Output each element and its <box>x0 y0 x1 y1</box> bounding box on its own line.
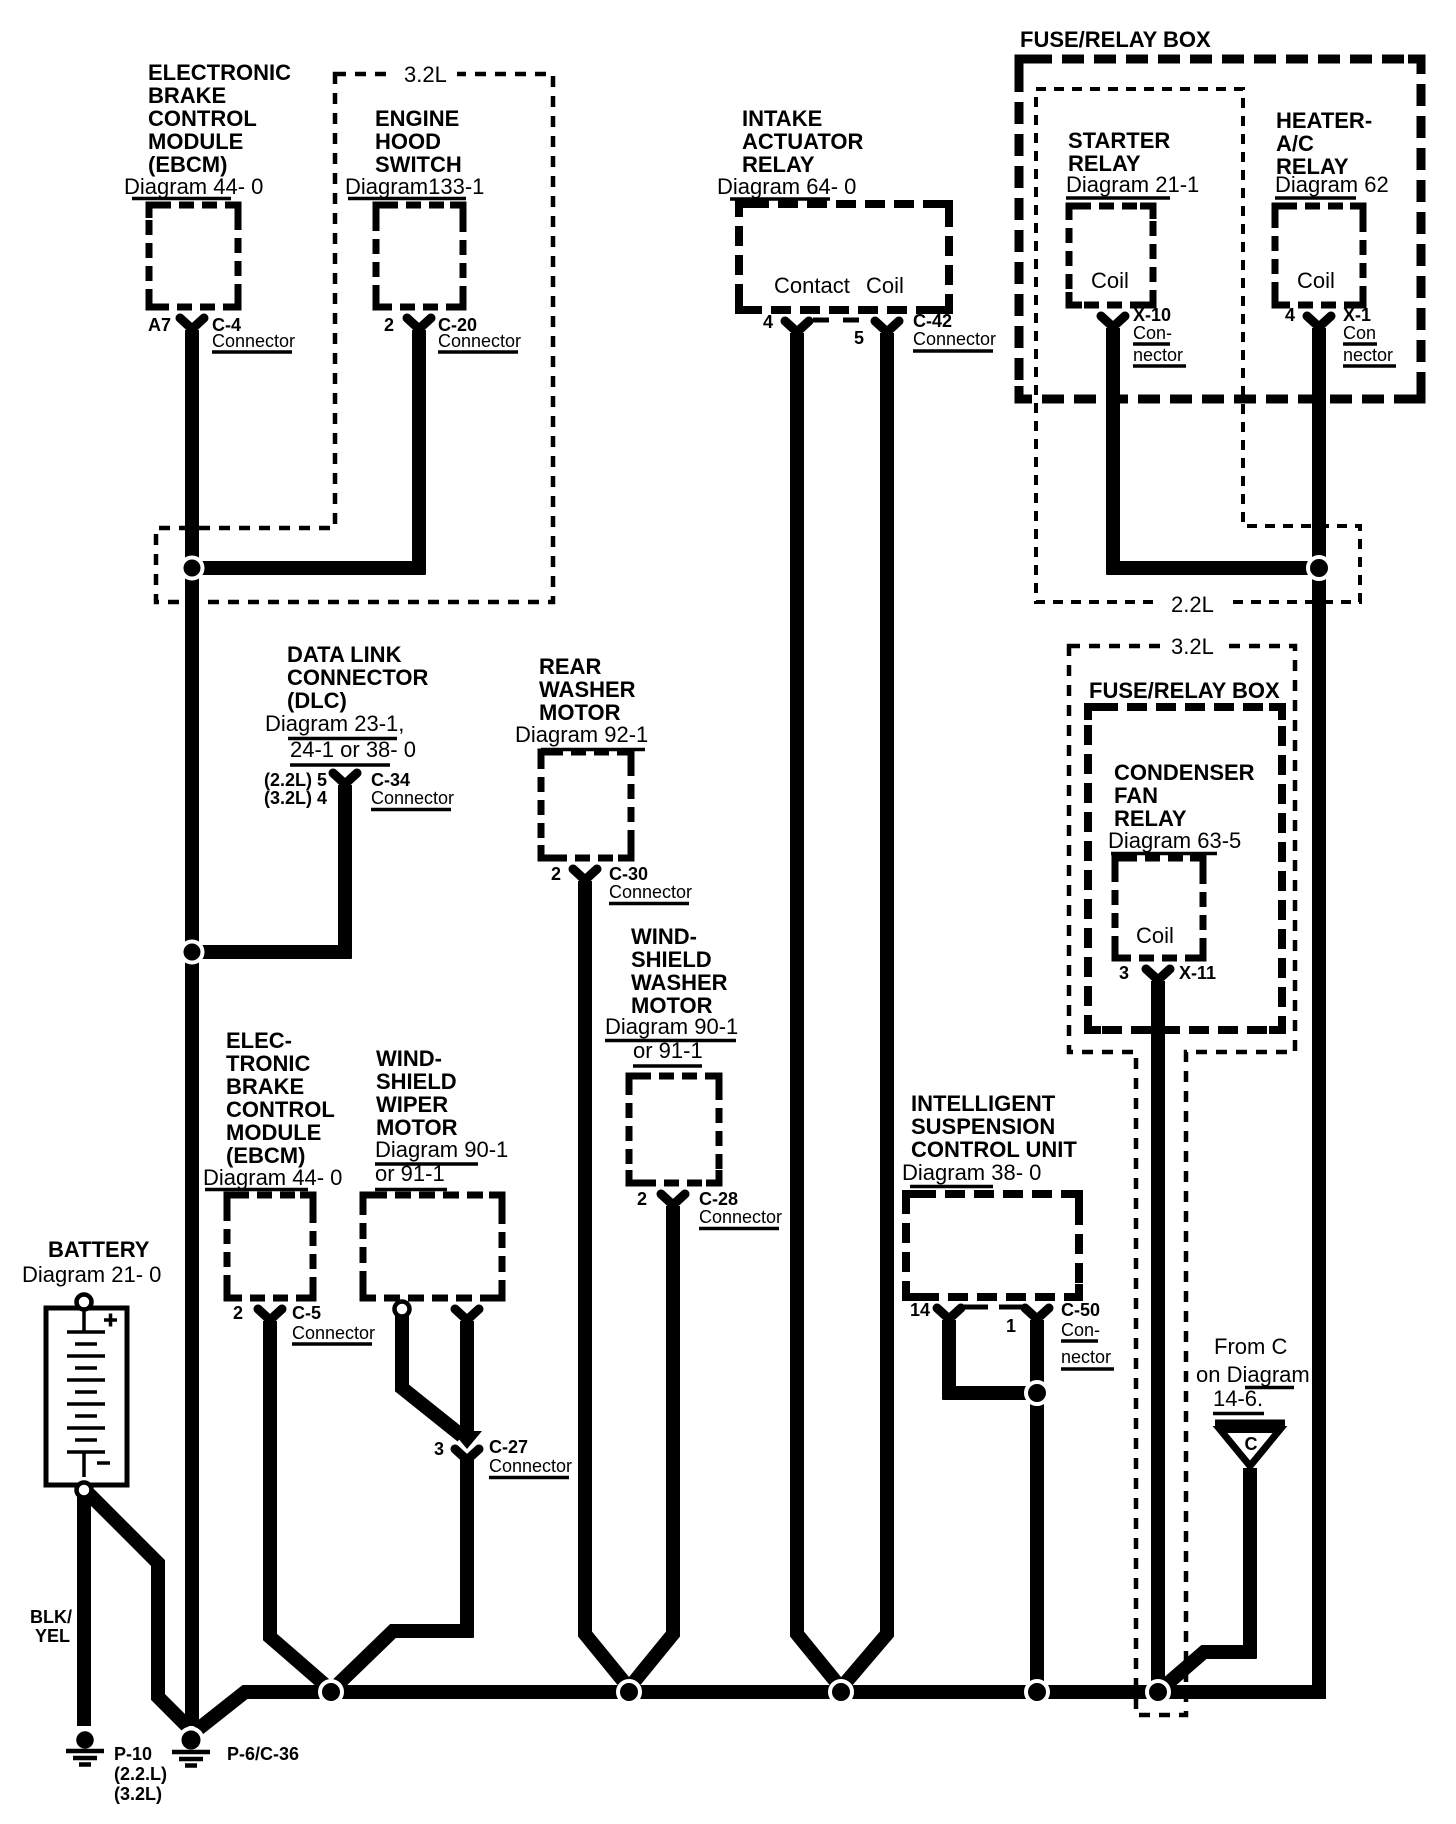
svg-text:Diagram 64- 0: Diagram 64- 0 <box>717 174 856 199</box>
svg-text:Coil: Coil <box>866 273 904 298</box>
svg-text:nector: nector <box>1061 1347 1111 1367</box>
svg-text:Diagram 90-1: Diagram 90-1 <box>605 1014 738 1039</box>
svg-text:MODULE: MODULE <box>226 1120 321 1145</box>
svg-text:Connector: Connector <box>438 331 521 351</box>
svg-text:WIND-: WIND- <box>376 1046 442 1071</box>
svg-text:P-6/C-36: P-6/C-36 <box>227 1744 299 1764</box>
svg-text:2: 2 <box>233 1303 243 1323</box>
svg-text:14: 14 <box>910 1300 930 1320</box>
svg-text:X-10: X-10 <box>1133 305 1171 325</box>
svg-text:nector: nector <box>1343 345 1393 365</box>
svg-text:(3.2L): (3.2L) <box>114 1784 162 1804</box>
svg-text:Coil: Coil <box>1091 268 1129 293</box>
svg-text:X-11: X-11 <box>1179 963 1216 983</box>
svg-text:Diagram133-1: Diagram133-1 <box>345 174 484 199</box>
svg-text:INTAKE: INTAKE <box>742 106 822 131</box>
svg-text:P-10: P-10 <box>114 1744 152 1764</box>
svg-text:FAN: FAN <box>1114 783 1158 808</box>
svg-text:(DLC): (DLC) <box>287 688 347 713</box>
svg-text:C-28: C-28 <box>699 1189 738 1209</box>
svg-text:Connector: Connector <box>699 1207 782 1227</box>
svg-text:nector: nector <box>1133 345 1183 365</box>
svg-text:(2.2.L): (2.2.L) <box>114 1764 167 1784</box>
svg-text:Diagram 44- 0: Diagram 44- 0 <box>124 174 263 199</box>
svg-text:(2.2L) 5: (2.2L) 5 <box>264 770 327 790</box>
svg-text:FUSE/RELAY BOX: FUSE/RELAY BOX <box>1020 27 1211 52</box>
svg-text:BLK/: BLK/ <box>30 1607 72 1627</box>
svg-text:BRAKE: BRAKE <box>226 1074 304 1099</box>
svg-text:C-42: C-42 <box>913 311 952 331</box>
svg-text:DATA LINK: DATA LINK <box>287 642 402 667</box>
svg-text:CONTROL: CONTROL <box>226 1097 335 1122</box>
svg-text:SHIELD: SHIELD <box>631 947 712 972</box>
svg-text:FUSE/RELAY BOX: FUSE/RELAY BOX <box>1089 678 1280 703</box>
svg-text:Con-: Con- <box>1061 1320 1100 1340</box>
svg-text:WASHER: WASHER <box>539 677 636 702</box>
svg-text:Diagram 21- 0: Diagram 21- 0 <box>22 1262 161 1287</box>
svg-text:2: 2 <box>637 1189 647 1209</box>
svg-text:Connector: Connector <box>292 1323 375 1343</box>
svg-text:X-1: X-1 <box>1343 305 1371 325</box>
svg-text:5: 5 <box>854 328 864 348</box>
svg-text:INTELLIGENT: INTELLIGENT <box>911 1091 1056 1116</box>
svg-text:Connector: Connector <box>913 329 996 349</box>
svg-text:ENGINE: ENGINE <box>375 106 459 131</box>
svg-text:Diagram 92-1: Diagram 92-1 <box>515 722 648 747</box>
svg-text:2: 2 <box>551 864 561 884</box>
svg-text:Diagram 21-1: Diagram 21-1 <box>1066 172 1199 197</box>
svg-text:BATTERY: BATTERY <box>48 1237 150 1262</box>
svg-text:Diagram 63-5: Diagram 63-5 <box>1108 828 1241 853</box>
svg-text:C-50: C-50 <box>1061 1300 1100 1320</box>
svg-text:24-1 or 38- 0: 24-1 or 38- 0 <box>290 737 416 762</box>
svg-text:SUSPENSION: SUSPENSION <box>911 1114 1055 1139</box>
svg-text:3: 3 <box>1119 963 1129 983</box>
svg-text:1: 1 <box>1006 1316 1016 1336</box>
svg-text:Connector: Connector <box>371 788 454 808</box>
svg-text:WIND-: WIND- <box>631 924 697 949</box>
svg-text:YEL: YEL <box>35 1626 70 1646</box>
svg-text:C-27: C-27 <box>489 1437 528 1457</box>
svg-text:WASHER: WASHER <box>631 970 728 995</box>
svg-text:TRONIC: TRONIC <box>226 1051 310 1076</box>
svg-text:Con-: Con- <box>1133 323 1172 343</box>
svg-text:3.2L: 3.2L <box>1171 634 1214 659</box>
svg-text:Contact: Contact <box>774 273 850 298</box>
svg-text:HEATER-: HEATER- <box>1276 108 1372 133</box>
svg-text:ELEC-: ELEC- <box>226 1028 292 1053</box>
svg-text:ACTUATOR: ACTUATOR <box>742 129 864 154</box>
svg-text:C-5: C-5 <box>292 1303 321 1323</box>
svg-text:Diagram 62: Diagram 62 <box>1275 172 1389 197</box>
svg-text:Connector: Connector <box>609 882 692 902</box>
svg-text:Diagram 44- 0: Diagram 44- 0 <box>203 1165 342 1190</box>
svg-text:WIPER: WIPER <box>376 1092 448 1117</box>
svg-text:CONNECTOR: CONNECTOR <box>287 665 428 690</box>
svg-text:2: 2 <box>384 315 394 335</box>
svg-text:From C: From C <box>1214 1334 1287 1359</box>
svg-text:ELECTRONIC: ELECTRONIC <box>148 60 291 85</box>
svg-text:or 91-1: or 91-1 <box>633 1038 703 1063</box>
svg-text:C-34: C-34 <box>371 770 410 790</box>
svg-text:REAR: REAR <box>539 654 601 679</box>
svg-text:Diagram 90-1: Diagram 90-1 <box>375 1137 508 1162</box>
svg-text:3.2L: 3.2L <box>404 62 447 87</box>
svg-text:(3.2L) 4: (3.2L) 4 <box>264 788 327 808</box>
svg-text:A/C: A/C <box>1276 131 1314 156</box>
svg-text:CONTROL: CONTROL <box>148 106 257 131</box>
svg-text:4: 4 <box>1285 305 1295 325</box>
svg-text:3: 3 <box>434 1439 444 1459</box>
svg-text:C: C <box>1245 1434 1258 1454</box>
svg-text:A7: A7 <box>148 315 171 335</box>
svg-text:Coil: Coil <box>1297 268 1335 293</box>
svg-text:on Diagram: on Diagram <box>1196 1362 1310 1387</box>
svg-text:or 91-1: or 91-1 <box>375 1161 445 1186</box>
svg-text:Diagram 23-1,: Diagram 23-1, <box>265 711 404 736</box>
svg-text:Connector: Connector <box>212 331 295 351</box>
svg-text:Connector: Connector <box>489 1456 572 1476</box>
svg-text:BRAKE: BRAKE <box>148 83 226 108</box>
svg-text:Con: Con <box>1343 323 1376 343</box>
svg-text:CONDENSER: CONDENSER <box>1114 760 1255 785</box>
svg-text:MODULE: MODULE <box>148 129 243 154</box>
svg-text:CONTROL UNIT: CONTROL UNIT <box>911 1137 1077 1162</box>
svg-text:2.2L: 2.2L <box>1171 592 1214 617</box>
svg-text:Coil: Coil <box>1136 923 1174 948</box>
svg-text:STARTER: STARTER <box>1068 128 1170 153</box>
svg-text:4: 4 <box>763 312 773 332</box>
svg-text:HOOD: HOOD <box>375 129 441 154</box>
svg-text:SHIELD: SHIELD <box>376 1069 457 1094</box>
svg-text:Diagram 38- 0: Diagram 38- 0 <box>902 1160 1041 1185</box>
svg-text:C-30: C-30 <box>609 864 648 884</box>
svg-text:14-6.: 14-6. <box>1213 1386 1263 1411</box>
